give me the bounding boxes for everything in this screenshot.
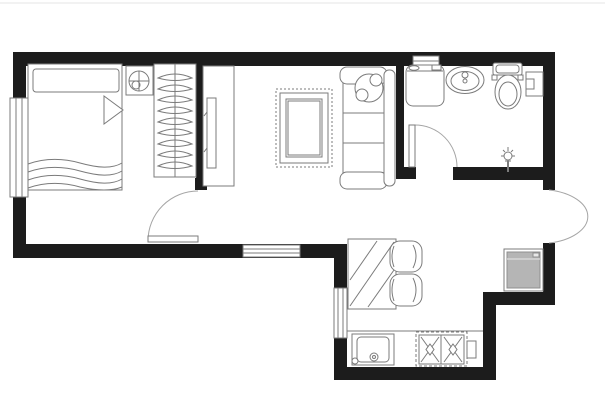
window-living [243, 245, 300, 257]
bath-cabinet [526, 72, 543, 96]
nightstand-lamp [126, 66, 153, 95]
wall-bath-partition [396, 52, 404, 173]
kitchen-sink [352, 334, 394, 365]
wall-bath-bottom [453, 167, 543, 180]
door-bedroom [148, 191, 198, 242]
toilet [492, 63, 523, 109]
floorplan-image [0, 0, 605, 400]
tv-cabinet [203, 66, 234, 186]
bathroom-sink [446, 67, 484, 94]
plant [355, 74, 383, 102]
door-bathroom [409, 125, 457, 167]
wardrobe [154, 64, 196, 177]
window-bedroom [10, 98, 28, 197]
wall-right-upper [543, 52, 555, 190]
door-entrance [549, 190, 588, 243]
window-kitchen [334, 288, 347, 338]
floorplan-svg [0, 0, 605, 400]
wall-bath-door-stub [396, 167, 416, 179]
refrigerator [504, 249, 543, 291]
wall-kitchen-right [483, 292, 496, 380]
stove [416, 332, 476, 366]
dining-table [348, 239, 396, 309]
washing-machine [406, 65, 444, 106]
rug [276, 89, 332, 167]
wall-kitchen-bottom [334, 367, 496, 380]
bed [28, 64, 123, 190]
room-entry-hall [404, 180, 543, 244]
